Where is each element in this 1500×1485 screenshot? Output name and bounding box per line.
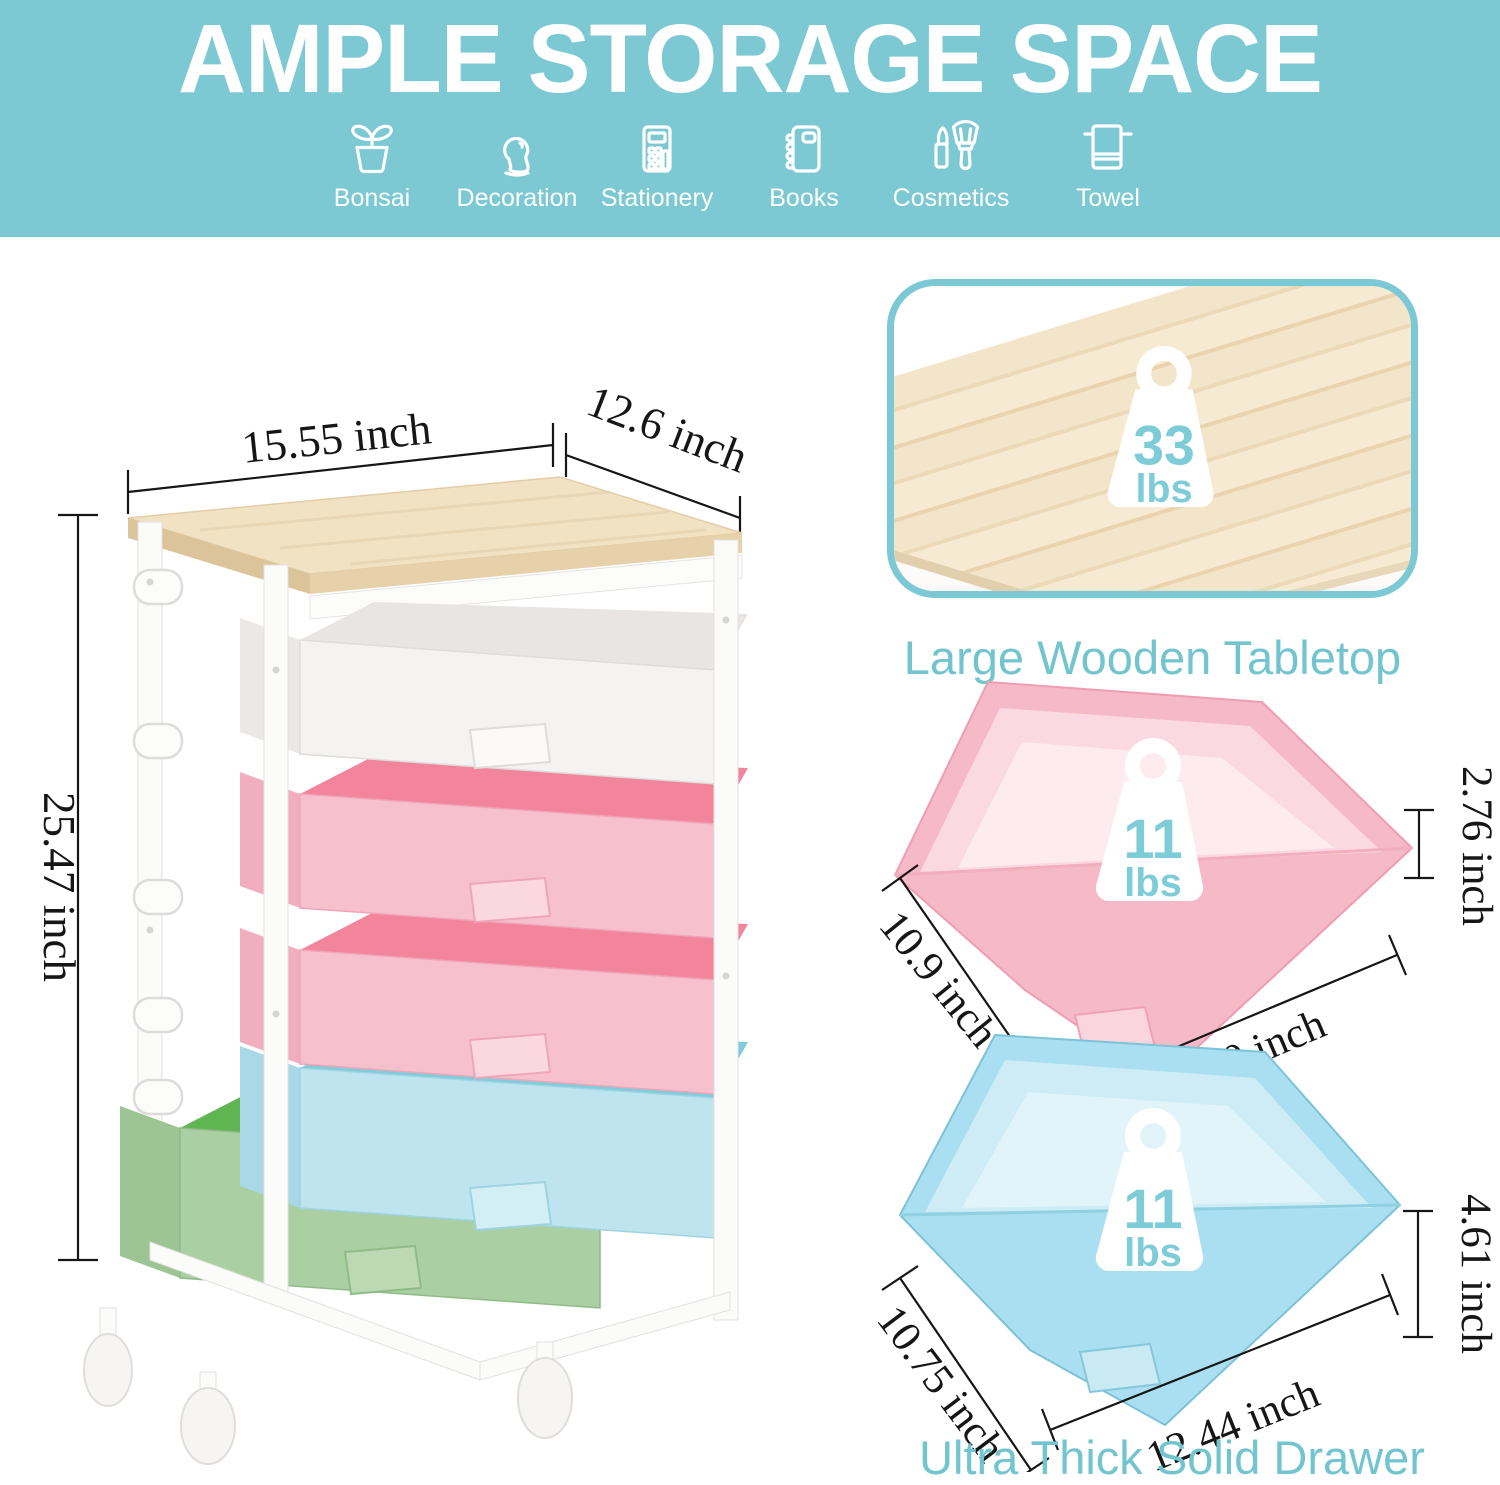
- category-label: Cosmetics: [871, 184, 1031, 213]
- banner: AMPLE STORAGE SPACE Bonsai Decoration St…: [0, 0, 1500, 237]
- stationery-icon: [626, 118, 688, 180]
- category-label: Towel: [1028, 184, 1188, 213]
- bonsai-icon: [341, 118, 403, 180]
- cart-depth-label: 12.6 inch: [580, 376, 754, 483]
- cart-height-dimension: 25.47 inch: [34, 515, 98, 1260]
- category-label: Bonsai: [292, 184, 452, 213]
- category-label: Decoration: [437, 184, 597, 213]
- books-icon: [773, 118, 835, 180]
- category-books: Books: [724, 118, 884, 213]
- frame-front-post: [264, 565, 288, 1295]
- drawer-white: [240, 602, 748, 784]
- caster-wheels: [84, 1308, 572, 1464]
- weight-badge-tabletop: 33 lbs: [1098, 346, 1230, 514]
- tabletop-caption: Large Wooden Tabletop: [880, 630, 1425, 685]
- category-label: Books: [724, 184, 884, 213]
- drawer-figures: 11 lbs 10.9 inch 12.60 inch 2.76 inch 11…: [850, 680, 1500, 1472]
- category-bonsai: Bonsai: [292, 118, 452, 213]
- category-label: Stationery: [577, 184, 737, 213]
- category-stationery: Stationery: [577, 118, 737, 213]
- cart-height-label: 25.47 inch: [34, 792, 84, 982]
- tabletop-card: 33 lbs: [887, 279, 1418, 598]
- product-infographic: { "banner": { "title": "AMPLE STORAGE SP…: [0, 0, 1500, 1472]
- pink-weight-unit: lbs: [1124, 861, 1182, 905]
- cart-illustration: 15.55 inch 12.6 inch 25.47 inch: [0, 370, 800, 1472]
- cosmetics-icon: [920, 118, 982, 180]
- decoration-icon: [486, 118, 548, 180]
- tabletop-weight-unit: lbs: [1135, 467, 1192, 511]
- drawer-caption: Ultra Thick Solid Drawer: [872, 1430, 1472, 1485]
- towel-icon: [1077, 118, 1139, 180]
- blue-height-label: 4.61 inch: [1452, 1194, 1499, 1354]
- blue-weight-unit: lbs: [1124, 1231, 1182, 1275]
- category-towel: Towel: [1028, 118, 1188, 213]
- drawer-pink-upper: [240, 756, 748, 938]
- banner-title: AMPLE STORAGE SPACE: [23, 10, 1478, 107]
- pink-height-label: 2.76 inch: [1453, 766, 1500, 926]
- frame-right-post: [714, 540, 738, 1320]
- category-cosmetics: Cosmetics: [871, 118, 1031, 213]
- category-decoration: Decoration: [437, 118, 597, 213]
- pink-drawer-sliver-right: [1199, 594, 1418, 598]
